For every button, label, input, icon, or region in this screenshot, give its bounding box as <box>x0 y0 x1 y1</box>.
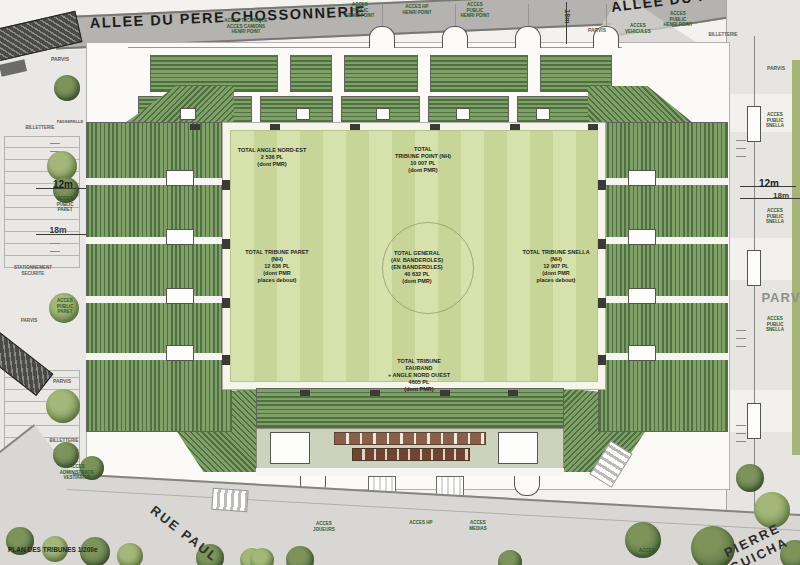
dim-12m-left: 12m <box>53 179 73 192</box>
parvis-right-small: PARVIS <box>767 65 785 71</box>
parvis-left-2: PARVIS <box>53 378 71 384</box>
vomitory-box <box>628 345 656 361</box>
survey-tick <box>736 441 746 442</box>
access-public-henri-point-3: ACCES PUBLIC HENRI POINT <box>663 11 692 28</box>
vomitory-box <box>536 108 550 120</box>
parvis-top-left: PARVIS <box>51 56 69 62</box>
west-aisle <box>86 178 232 185</box>
vomitory-box <box>270 432 310 464</box>
vomitory-box <box>628 229 656 245</box>
survey-tick <box>736 425 746 426</box>
ticket-booth <box>747 106 761 142</box>
west-aisle <box>86 237 232 244</box>
dim-12m-right: 12m <box>759 178 779 191</box>
road-centerline <box>0 485 800 533</box>
access-public-paret-1: ACCES PUBLIC PARET <box>57 196 74 213</box>
total-tribune-point: TOTAL TRIBUNE POINT (NH) 10 007 PL (dont… <box>395 146 451 174</box>
scale-note: PLAN DES TRIBUNES 1/200e <box>8 546 98 554</box>
vomitory-mark <box>588 124 598 130</box>
survey-tick <box>50 243 60 244</box>
entrance-line <box>528 4 529 26</box>
dim-line-18m-right <box>740 198 800 199</box>
vomitory-box <box>166 288 194 304</box>
entrance-line <box>606 4 607 26</box>
tree <box>250 548 274 565</box>
survey-tick <box>50 143 60 144</box>
entrance-line <box>382 4 383 26</box>
tree <box>736 464 764 492</box>
vomitory-mark <box>598 355 606 365</box>
arch-entrance-north <box>515 26 541 48</box>
east-aisle <box>598 353 728 360</box>
access-public-snella-2: ACCES PUBLIC SNELLA <box>766 208 784 225</box>
access-public-henri-point-1: ACCES PUBLIC HENRI POINT <box>345 2 374 19</box>
total-general: TOTAL GENERAL (AV. BANDEROLES) (EN BANDE… <box>391 250 443 284</box>
north-stand-upper-block <box>290 55 332 92</box>
vomitory-mark <box>350 124 360 130</box>
total-angle-nord-est: TOTAL ANGLE NORD-EST 2 536 PL (dont PMR) <box>238 147 307 168</box>
vomitory-box <box>376 108 390 120</box>
hedge-east <box>792 60 800 455</box>
ticket-booth <box>747 403 761 439</box>
vomitory-mark <box>598 180 606 190</box>
access-public-snella-3: ACCES PUBLIC SNELLA <box>766 316 784 333</box>
lodges-row-2 <box>352 448 470 461</box>
survey-tick <box>736 330 746 331</box>
concourse-crossing-1 <box>726 94 800 132</box>
access-hp-henri-point: ACCES HP HENRI POINT <box>402 4 431 15</box>
vomitory-mark <box>222 180 230 190</box>
survey-tick <box>50 251 60 252</box>
vomitory-box <box>628 288 656 304</box>
access-public-snella-1: ACCES PUBLIC SNELLA <box>766 112 784 129</box>
survey-tick <box>736 148 746 149</box>
billetterie-top-right: BILLETTERIE <box>709 32 738 38</box>
billetterie-left-top: BILLETTERIE <box>26 125 55 131</box>
vomitory-box <box>180 108 196 120</box>
vomitory-mark <box>510 124 520 130</box>
survey-tick <box>736 433 746 434</box>
north-stand-upper-block <box>430 55 528 92</box>
concourse-crossing-2 <box>726 238 800 280</box>
survey-tick <box>736 338 746 339</box>
vomitory-mark <box>222 298 230 308</box>
vomitory-mark <box>190 124 200 130</box>
tree <box>117 543 143 565</box>
access-technique-camions: ACCES TECHNIQUE ACCES CAMIONS HENRI POIN… <box>224 18 268 35</box>
vomitory-box <box>166 170 194 186</box>
passerelle: PASSERELLE <box>57 119 83 124</box>
access-public-paret-2: ACCES PUBLIC PARET <box>57 298 74 315</box>
total-tribune-faurand: TOTAL TRIBUNE FAURAND + ANGLE NORD OUEST… <box>388 358 450 392</box>
total-tribune-paret: TOTAL TRIBUNE PARET (NH) 12 636 PL (dont… <box>245 249 308 283</box>
access-joueurs: ACCES JOUEURS <box>313 521 335 532</box>
vomitory-box <box>456 108 470 120</box>
vomitory-mark <box>370 390 380 396</box>
east-stand <box>598 122 728 432</box>
vomitory-box <box>498 432 538 464</box>
entrance-line <box>455 4 456 26</box>
south-promenade <box>256 468 564 476</box>
vomitory-mark <box>598 298 606 308</box>
billetterie-left-bottom: BILLETTERIE <box>50 438 79 444</box>
arch-entrance-south <box>514 476 540 496</box>
vomitory-mark <box>300 390 310 396</box>
survey-tick <box>736 346 746 347</box>
access-hp-south: ACCES HP <box>409 520 432 526</box>
arch-entrance-north <box>442 26 468 48</box>
vomitory-mark <box>222 355 230 365</box>
arch-entrance-north <box>369 26 395 48</box>
west-aisle <box>86 296 232 303</box>
dim-18m-left: 18m <box>49 225 66 236</box>
dim-18m-right: 18m <box>773 191 789 201</box>
east-aisle <box>598 296 728 303</box>
parvis-left-small: PARVIS <box>21 318 37 324</box>
vomitory-box <box>166 345 194 361</box>
access-administratif-vestiaires: ACCES ADMINISTRATIF VESTIAIRES <box>60 464 95 481</box>
east-aisle <box>598 178 728 185</box>
dim-18m-top: 18m <box>563 9 572 23</box>
vomitory-box <box>296 108 310 120</box>
vomitory-mark <box>222 239 230 249</box>
stationnement-securite: STATIONNEMENT SECURITE <box>14 265 52 276</box>
parvis-top-center: PARVIS <box>588 27 606 33</box>
lodges-row-1 <box>334 432 486 445</box>
stadium-site-plan: PLAN DES TRIBUNES 1/200e ALLEE DU PERE C… <box>0 0 800 565</box>
parvis-right-big: PARVIS <box>761 290 800 306</box>
vomitory-box <box>628 170 656 186</box>
tree <box>54 75 80 101</box>
survey-tick <box>736 140 746 141</box>
west-aisle <box>86 353 232 360</box>
vomitory-mark <box>508 390 518 396</box>
vomitory-mark <box>430 124 440 130</box>
total-tribune-snella: TOTAL TRIBUNE SNELLA (NH) 12 907 PL (don… <box>522 249 589 283</box>
access-medias: ACCES MEDIAS <box>469 520 487 531</box>
access-public-henri-point-2: ACCES PUBLIC HENRI POINT <box>460 2 489 19</box>
crosswalk-south <box>211 488 248 512</box>
north-stand-upper-block <box>344 55 418 92</box>
access-south-east: ACCES <box>639 548 655 554</box>
ticket-booth <box>747 250 761 286</box>
west-stand <box>86 122 232 432</box>
access-vehicules: ACCES VEHICULES <box>625 23 651 34</box>
vomitory-mark <box>270 124 280 130</box>
vomitory-mark <box>598 239 606 249</box>
east-aisle <box>598 237 728 244</box>
tree <box>46 389 80 423</box>
vomitory-box <box>166 229 194 245</box>
survey-tick <box>736 156 746 157</box>
